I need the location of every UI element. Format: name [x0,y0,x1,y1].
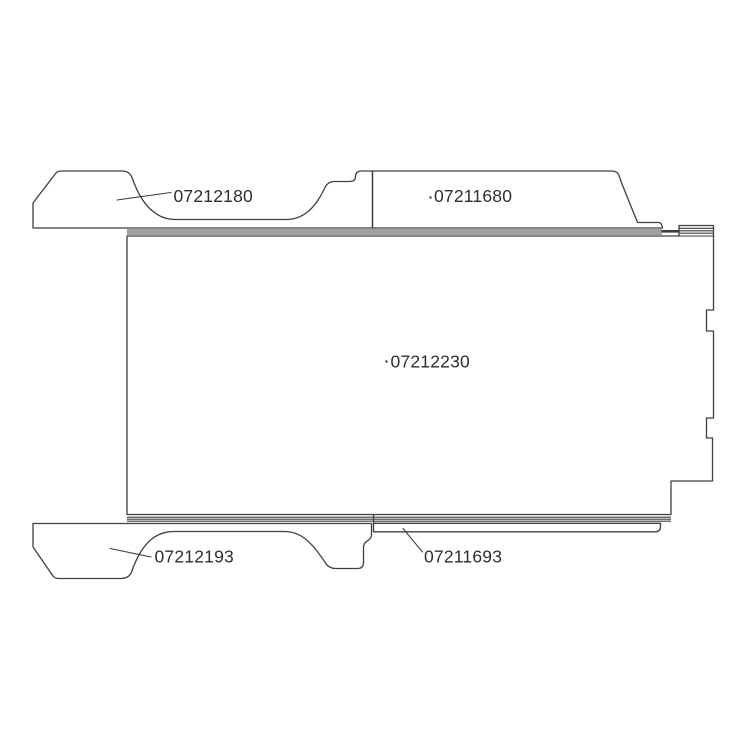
callout-leaders [110,193,432,558]
part-label-top-left-panel: 07212180 [174,186,254,206]
van-floor-liner-parts-diagram: 07212180 07211680 07212230 07212193 0721… [0,0,750,750]
leader-bottom-left-panel [110,549,151,558]
part-label-top-right-panel: 07211680 [434,186,512,206]
part-label-main-floor-panel: 07212230 [391,352,471,372]
part-label-bottom-sill-strip: 07211693 [424,547,502,567]
top-right-panel-outline [373,171,663,228]
leader-dot-main-floor-panel [385,360,387,362]
part-label-bottom-left-panel: 07212193 [155,547,234,567]
leader-dot-top-right-panel [429,196,431,198]
bottom-sill-rail-lines [127,517,671,521]
parts-diagram-page: 07212180 07211680 07212230 07212193 0721… [0,0,750,750]
leader-top-left-panel [117,193,171,201]
top-sill-rail-lines [127,228,714,236]
